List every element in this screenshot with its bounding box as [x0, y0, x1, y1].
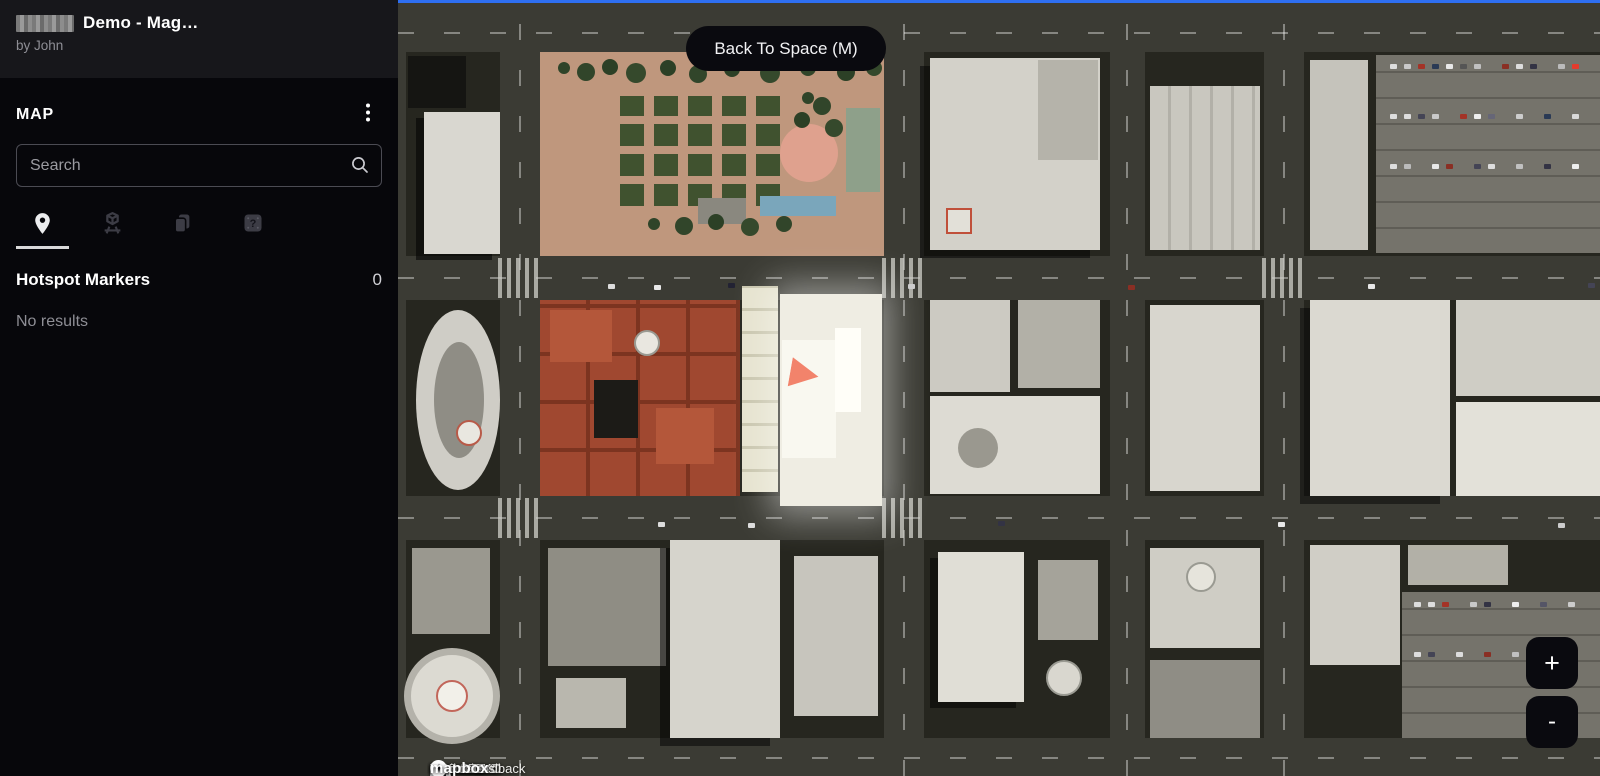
building — [930, 396, 1100, 494]
back-to-space-button[interactable]: Back To Space (M) — [686, 26, 886, 71]
search-input[interactable] — [16, 144, 382, 187]
building — [1456, 300, 1600, 396]
list-count-badge: 0 — [373, 270, 382, 290]
highlighted-building-wing — [782, 340, 836, 458]
street-lane-line — [398, 277, 1600, 279]
space-boundary-line — [398, 0, 1600, 3]
building — [1310, 300, 1450, 496]
search-icon — [349, 154, 371, 181]
pages-icon — [170, 211, 195, 239]
building — [424, 112, 500, 254]
space-title: Demo - Mag… — [83, 13, 199, 33]
helipad — [456, 420, 482, 446]
building — [670, 540, 780, 738]
street-lane-line — [398, 32, 1600, 34]
tab-hotspot-markers[interactable] — [16, 203, 69, 249]
building — [794, 556, 878, 716]
section-label: MAP — [16, 106, 54, 124]
crosswalk — [882, 498, 926, 538]
park-structure — [698, 198, 746, 224]
building — [548, 548, 666, 666]
building — [1038, 60, 1098, 160]
helipad — [1046, 660, 1082, 696]
zoom-in-button[interactable]: + — [1526, 637, 1578, 689]
helipad — [1186, 562, 1216, 592]
building — [412, 548, 490, 634]
park-garden-maze — [620, 96, 782, 206]
helipad-square — [946, 208, 972, 234]
park-pool — [760, 196, 836, 216]
space-header: Demo - Mag… by John — [0, 0, 398, 78]
building — [1150, 86, 1260, 250]
crosswalk — [498, 258, 542, 298]
street-lane-line — [398, 517, 1600, 519]
highlighted-building-roof — [835, 328, 861, 412]
tab-copies[interactable] — [156, 203, 209, 249]
tab-3d-models[interactable] — [86, 203, 139, 249]
sidebar: Demo - Mag… by John MAP — [0, 0, 398, 776]
kebab-menu-icon[interactable] — [354, 100, 382, 129]
building — [1310, 545, 1400, 665]
crosswalk — [882, 258, 926, 298]
terracotta-roof — [656, 408, 714, 464]
building — [1456, 402, 1600, 496]
zoom-out-button[interactable]: - — [1526, 696, 1578, 748]
terracotta-roof — [550, 310, 612, 362]
svg-text:?: ? — [249, 218, 256, 230]
trees — [648, 218, 660, 230]
street-lane-line — [519, 0, 521, 776]
mapbox-wordmark: mapbox — [430, 760, 489, 776]
striped-building — [742, 286, 778, 492]
empty-results-text: No results — [16, 313, 382, 331]
street-lane-line — [1283, 0, 1285, 776]
street-lane-line — [1126, 0, 1128, 776]
building — [1408, 545, 1508, 585]
help-square-icon: ? — [241, 211, 265, 238]
building — [556, 678, 626, 728]
parked-cars — [1414, 602, 1421, 607]
tab-help[interactable]: ? — [226, 203, 279, 249]
app-window: Demo - Mag… by John MAP — [0, 0, 1600, 776]
crosswalk — [498, 498, 542, 538]
building — [1150, 660, 1260, 738]
helipad — [634, 330, 660, 356]
building — [1310, 60, 1368, 250]
crosswalk — [1262, 258, 1306, 298]
redacted-title-prefix — [16, 15, 74, 32]
courtyard — [594, 380, 638, 438]
building — [938, 552, 1024, 702]
cube-projection-icon — [99, 210, 126, 240]
park-lawn — [846, 108, 880, 192]
helipad — [436, 680, 468, 712]
parking-lot — [1376, 55, 1600, 253]
building — [930, 300, 1010, 392]
parked-cars — [1390, 64, 1397, 69]
trees — [558, 62, 570, 74]
park-plaza-circle — [780, 124, 838, 182]
building — [1038, 560, 1098, 640]
parked-cars — [1390, 164, 1397, 169]
satellite-map[interactable]: Back To Space (M) + - Client 2.24.1 GSP … — [398, 0, 1600, 776]
street-cars — [608, 284, 615, 289]
roof-vent — [958, 428, 998, 468]
layer-tabs: ? — [16, 203, 382, 249]
street-cars — [658, 522, 665, 527]
parked-cars — [1414, 652, 1421, 657]
list-header: Hotspot Markers — [16, 270, 150, 290]
trees — [802, 92, 814, 104]
building — [408, 56, 466, 108]
map-pin-icon — [30, 211, 55, 239]
space-byline: by John — [16, 38, 382, 53]
building — [1018, 300, 1100, 388]
parked-cars — [1390, 114, 1397, 119]
building — [1150, 305, 1260, 491]
street-lane-line — [903, 0, 905, 776]
street-lane-line — [398, 757, 1600, 759]
